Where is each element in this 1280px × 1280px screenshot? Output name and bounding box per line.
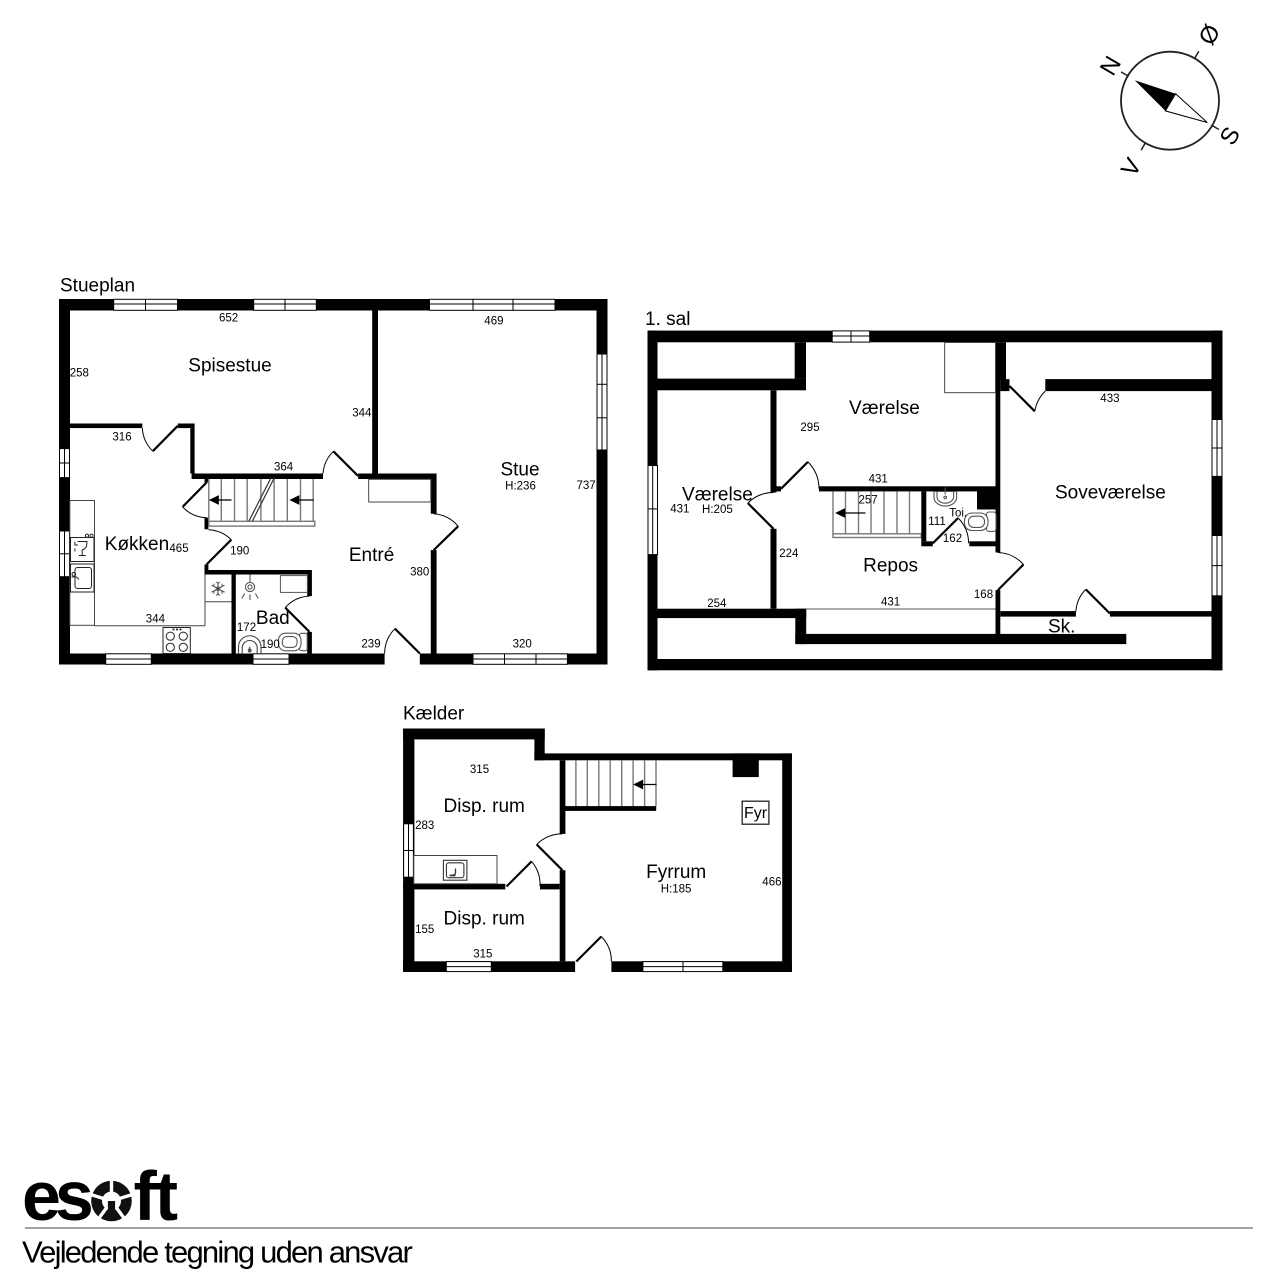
svg-text:Disp. rum: Disp. rum	[444, 796, 525, 817]
svg-text:431: 431	[670, 504, 689, 516]
svg-text:Kælder: Kælder	[403, 704, 465, 725]
svg-text:320: 320	[513, 638, 532, 650]
svg-text:315: 315	[473, 948, 492, 960]
svg-text:155: 155	[415, 924, 434, 936]
svg-text:224: 224	[779, 548, 799, 560]
svg-text:652: 652	[219, 313, 238, 325]
svg-text:H:185: H:185	[661, 884, 692, 896]
svg-text:Disp. rum: Disp. rum	[444, 908, 525, 929]
svg-text:Køkken: Køkken	[105, 534, 169, 555]
svg-text:344: 344	[352, 407, 372, 419]
svg-text:Sk.: Sk.	[1048, 617, 1075, 638]
svg-text:295: 295	[800, 422, 819, 434]
svg-text:Vejledende tegning uden ansvar: Vejledende tegning uden ansvar	[22, 1235, 412, 1270]
svg-text:Repos: Repos	[863, 555, 918, 576]
svg-text:254: 254	[707, 598, 727, 610]
svg-text:172: 172	[237, 622, 256, 634]
svg-text:283: 283	[415, 820, 434, 832]
svg-text:257: 257	[859, 495, 878, 507]
svg-text:364: 364	[274, 461, 294, 473]
svg-text:Spisestue: Spisestue	[188, 356, 271, 377]
svg-text:Stueplan: Stueplan	[60, 276, 135, 297]
svg-text:1. sal: 1. sal	[645, 309, 690, 330]
svg-text:431: 431	[881, 597, 900, 609]
svg-text:315: 315	[470, 764, 489, 776]
svg-text:344: 344	[146, 613, 166, 625]
svg-text:737: 737	[577, 480, 596, 492]
svg-text:190: 190	[230, 545, 249, 557]
svg-text:Toi.: Toi.	[949, 508, 967, 520]
svg-text:465: 465	[169, 543, 188, 555]
svg-text:316: 316	[112, 432, 131, 444]
svg-text:H:205: H:205	[702, 504, 733, 516]
svg-text:Stue: Stue	[500, 460, 539, 481]
svg-text:es: es	[22, 1157, 92, 1235]
svg-text:168: 168	[974, 589, 993, 601]
svg-text:Værelse: Værelse	[849, 398, 920, 419]
svg-text:239: 239	[361, 638, 380, 650]
svg-text:Soveværelse: Soveværelse	[1055, 482, 1166, 503]
svg-text:Bad: Bad	[256, 608, 290, 629]
svg-text:433: 433	[1100, 393, 1119, 405]
svg-text:431: 431	[869, 474, 888, 486]
svg-text:162: 162	[943, 533, 962, 545]
svg-text:ft: ft	[134, 1157, 178, 1235]
svg-text:380: 380	[410, 566, 429, 578]
svg-text:Værelse: Værelse	[682, 484, 753, 505]
svg-text:Fyrrum: Fyrrum	[646, 862, 706, 883]
svg-text:190: 190	[261, 639, 280, 651]
svg-text:H:236: H:236	[505, 480, 536, 492]
svg-text:Entré: Entré	[349, 545, 394, 566]
svg-text:258: 258	[70, 368, 89, 380]
svg-text:466: 466	[762, 876, 781, 888]
svg-text:Fyr: Fyr	[744, 805, 768, 822]
svg-text:111: 111	[928, 516, 945, 528]
svg-text:469: 469	[484, 316, 503, 328]
